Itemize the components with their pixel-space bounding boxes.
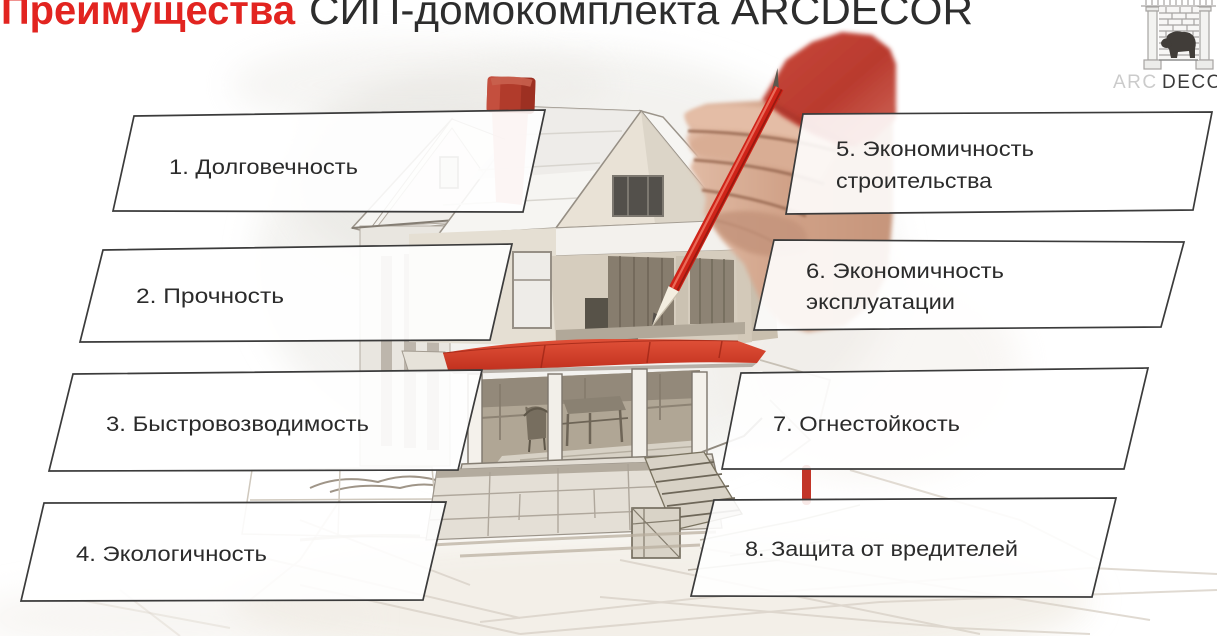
svg-text:3. Быстровозводимость: 3. Быстровозводимость (106, 412, 369, 436)
svg-text:строительства: строительства (836, 169, 992, 193)
svg-text:7. Огнестойкость: 7. Огнестойкость (773, 412, 960, 436)
svg-text:ARC: ARC (1113, 72, 1158, 93)
svg-text:4. Экологичность: 4. Экологичность (76, 542, 267, 566)
svg-text:6. Экономичность: 6. Экономичность (806, 259, 1004, 283)
svg-text:5. Экономичность: 5. Экономичность (836, 137, 1034, 161)
svg-text:эксплуатации: эксплуатации (806, 290, 955, 314)
svg-text:Преимущества: Преимущества (1, 0, 296, 33)
svg-text:2. Прочность: 2. Прочность (136, 284, 284, 308)
svg-text:8. Защита от вредителей: 8. Защита от вредителей (745, 537, 1018, 561)
svg-text:1. Долговечность: 1. Долговечность (169, 155, 358, 179)
svg-text:DECOR: DECOR (1162, 72, 1217, 93)
svg-text:СИП-домокомплекта ARCDECOR: СИП-домокомплекта ARCDECOR (309, 0, 973, 33)
